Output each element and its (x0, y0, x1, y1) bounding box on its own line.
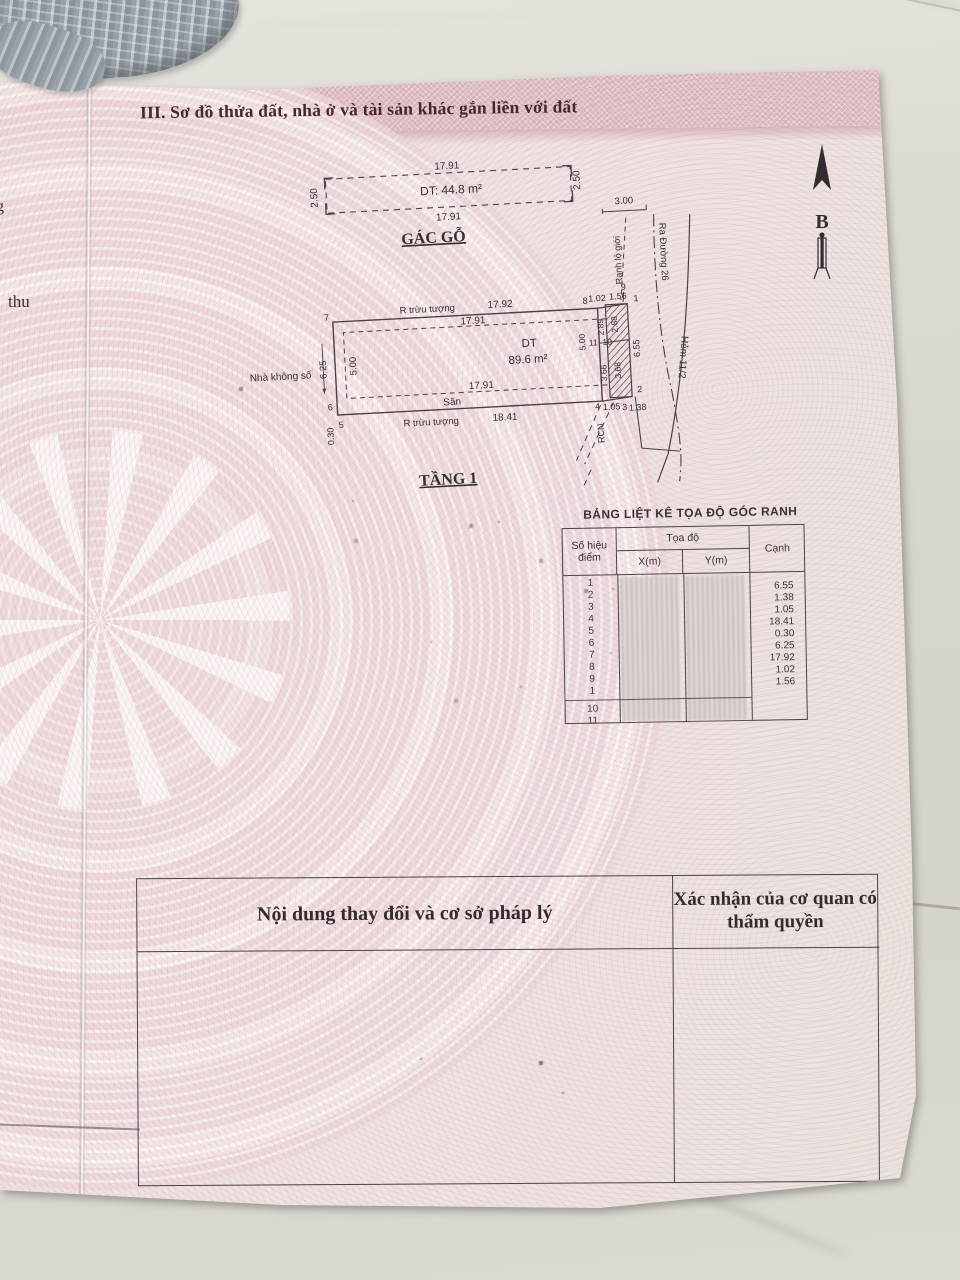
edge-length: 18.41 (750, 616, 794, 629)
inner-bottom-dim: 17.91 (469, 380, 495, 392)
yard-label: Sân (443, 397, 461, 409)
text-fragment: thu (8, 292, 30, 312)
col-header-point: Số hiệu điểm (563, 528, 618, 575)
col-header-edge: Cạnh (748, 525, 805, 572)
alley-label: Hẻm 11/2 (676, 336, 690, 380)
dim-3-68: 3.68 (612, 361, 623, 378)
dim-gacgo-right: 2.50 (571, 170, 583, 190)
point-number: 4 (564, 613, 618, 626)
point-number: 9 (565, 673, 619, 686)
edge-top-value: 17.92 (487, 299, 513, 311)
changes-header: Nội dung thay đổi và cơ sở pháp lý (137, 876, 672, 951)
area-value: 89.6 m² (508, 353, 548, 367)
point-number: 1 (563, 577, 617, 590)
dim-1-56: 1.56 (609, 291, 627, 302)
coordinate-table-grid: Số hiệu điểm Tọa độ X(m) Y(m) Cạnh 12345… (561, 524, 807, 724)
inner-top-dim: 17.91 (460, 315, 486, 327)
road-boundary-label: Ranh lộ giới (612, 236, 625, 285)
point-3: 3 (622, 402, 628, 412)
rcn-label: RCN (596, 423, 607, 443)
coordinate-table-body: 1234567891 1011 6.551.381.0518.410.306.2… (563, 571, 807, 723)
dim-gacgo-bottom: 17.91 (436, 211, 462, 223)
dim-gacgo-top: 17.91 (434, 160, 460, 172)
road-width-dim: 3.00 (614, 195, 633, 207)
point-2: 2 (637, 384, 643, 394)
point-5: 5 (338, 420, 344, 430)
edge-top-label: R trừu tượng (399, 303, 455, 317)
ground-floor-outline: R trừu tượng 17.92 17.91 DT 89.6 m² 17.9… (246, 281, 650, 498)
changes-body-empty (138, 947, 881, 1186)
edge-length: 1.38 (750, 592, 794, 605)
authority-header: Xác nhận của cơ quan có thẩm quyền (672, 875, 877, 948)
col-header-coords: Tọa độ (616, 526, 748, 551)
house-label: Nhà không số (249, 369, 312, 384)
edge-length: 1.05 (750, 604, 794, 617)
dim-1-38: 1.38 (629, 402, 647, 413)
dim-2-88: 2.88 (609, 316, 620, 333)
compass-north-label: B (815, 211, 828, 233)
edge-length: 0.30 (750, 628, 794, 641)
point-number-list: 1234567891 (563, 577, 619, 698)
to-street-label: Ra Đường 26 (656, 222, 670, 281)
land-certificate-page: g thu III. Sơ đồ thửa đất, nhà ở và tài … (0, 0, 920, 1216)
point-8: 8 (582, 296, 588, 306)
edge-length: 6.25 (750, 640, 794, 653)
edge-length: 1.02 (751, 664, 795, 677)
mezzanine-outline: 17.91 DT: 44.8 m² 17.91 2.50 2.50 GÁC GỖ (308, 154, 586, 253)
dim-left-bottom: 0.30 (325, 427, 336, 445)
gacgo-area: DT: 44.8 m² (420, 181, 483, 198)
coordinate-table: BẢNG LIỆT KÊ TỌA ĐỘ GÓC RANH Số hiệu điể… (561, 504, 811, 724)
document-shadow-wrap: g thu III. Sơ đồ thửa đất, nhà ở và tài … (0, 0, 960, 1280)
dim-left-inner: 5.00 (348, 357, 360, 376)
point-1: 1 (633, 293, 639, 303)
col-header-y: Y(m) (683, 549, 749, 573)
point-number: 6 (564, 637, 618, 650)
coordinate-table-title: BẢNG LIỆT KÊ TỌA ĐỘ GÓC RANH (583, 504, 807, 522)
mezzanine-title: GÁC GỖ (401, 225, 466, 248)
changes-table: Nội dung thay đổi và cơ sở pháp lý Xác n… (136, 874, 880, 1187)
point-number: 5 (564, 625, 618, 638)
dim-right-inner: 5.00 (577, 333, 588, 350)
edge-length: 6.55 (749, 580, 793, 593)
area-label: DT (521, 337, 537, 350)
col-header-x: X(m) (617, 550, 683, 574)
point-number: 2 (564, 589, 618, 602)
point-number: 11 (566, 715, 620, 728)
point-10: 10 (602, 337, 612, 347)
edge-bottom-value: 18.41 (492, 412, 518, 424)
floor1-title: TẦNG 1 (419, 468, 478, 490)
dim-gacgo-left: 2.50 (309, 187, 321, 207)
text-fragment: g (0, 198, 4, 216)
edge-bottom-label: R trừu tượng (403, 416, 459, 430)
north-arrow-icon (813, 144, 831, 190)
edge-length: 1.56 (751, 676, 795, 689)
dim-1-02: 1.02 (588, 293, 606, 304)
floor-plan-svg: 17.91 DT: 44.8 m² 17.91 2.50 2.50 GÁC GỖ… (130, 140, 910, 510)
point-6: 6 (328, 402, 334, 412)
point-number: 1 (565, 685, 619, 698)
dim-2-89: 2.89 (595, 318, 606, 335)
edge-length-list: 6.551.381.0518.410.306.2517.921.021.56 (749, 580, 803, 689)
dim-left-outer: 6.25 (318, 360, 330, 379)
extra-point-list: 1011 (566, 703, 620, 728)
point-number: 3 (564, 601, 618, 614)
point-number: 7 (565, 649, 619, 662)
point-7: 7 (324, 312, 330, 322)
dim-3-66: 3.66 (598, 364, 609, 381)
point-11: 11 (589, 337, 599, 347)
dim-6-55: 6.55 (631, 339, 642, 357)
point-number: 10 (566, 703, 620, 716)
edge-length: 17.92 (751, 652, 795, 665)
north-compass: B (813, 144, 831, 279)
point-number: 8 (565, 661, 619, 674)
